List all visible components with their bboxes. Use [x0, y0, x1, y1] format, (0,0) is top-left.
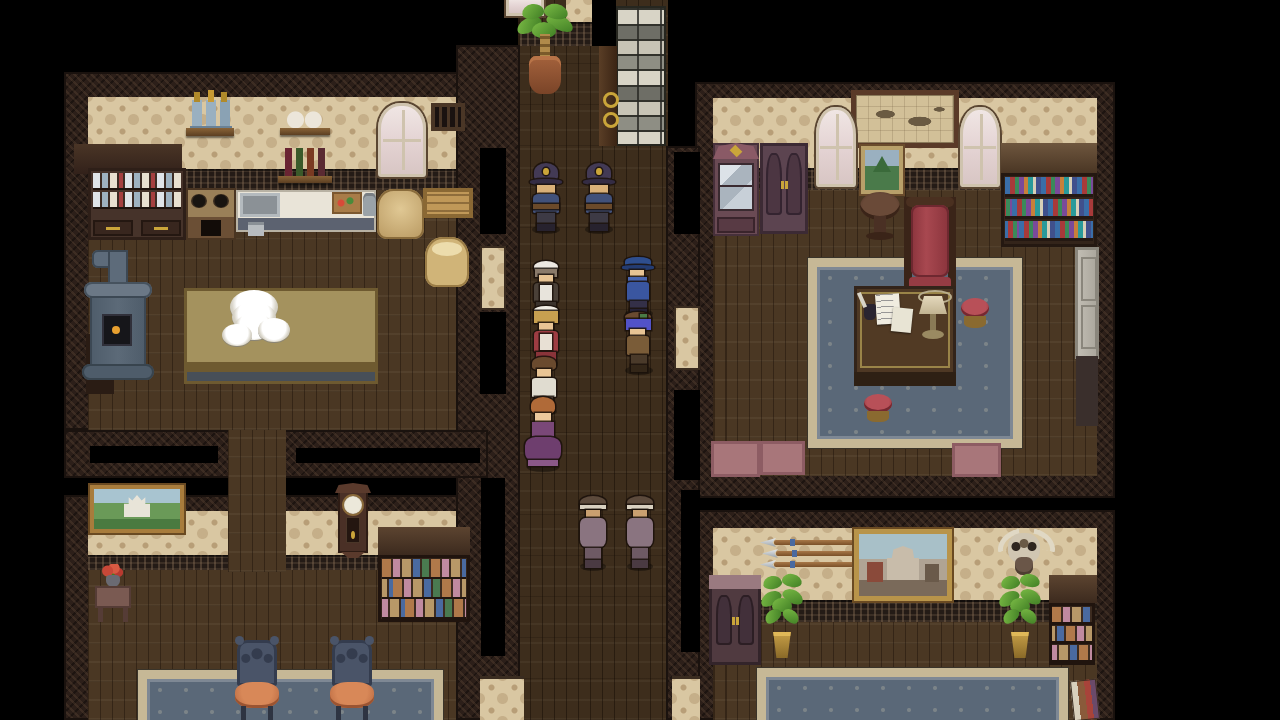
cloaked-figure-1[interactable]	[576, 496, 610, 568]
cloaked-figure-1-hat-band	[580, 505, 606, 509]
detective-coat	[627, 282, 649, 301]
butler-man-shirt	[532, 378, 556, 397]
blue-haired-boy-legs	[631, 355, 647, 366]
characters-layer	[0, 0, 1280, 720]
police-officer-2[interactable]	[581, 163, 617, 231]
blue-haired-boy-jacket	[627, 336, 649, 355]
cloaked-figure-1-face	[586, 510, 601, 518]
lady-purple-gown-face	[535, 413, 552, 422]
police-officer-1-legs	[537, 213, 555, 225]
blue-haired-boy-boots	[631, 365, 647, 372]
butler-man-face	[537, 369, 552, 377]
police-officer-2-badge	[596, 168, 602, 175]
lady-purple-gown-bodice	[532, 422, 554, 438]
police-officer-1-badge	[543, 168, 549, 175]
police-officer-2-torso	[586, 194, 612, 213]
blonde-maid-face	[539, 323, 553, 331]
cloaked-figure-2-hat-band	[627, 505, 653, 509]
police-officer-1-face	[537, 185, 554, 193]
blonde-maid-apron	[540, 334, 552, 350]
cloaked-figure-2-legs	[632, 548, 648, 561]
cloaked-figure-2-boots	[632, 560, 648, 568]
detective-hat-brim	[622, 265, 654, 270]
police-officer-1[interactable]	[528, 163, 564, 231]
cloaked-figure-1-legs	[585, 548, 601, 561]
lady-purple-gown-hair	[531, 397, 555, 414]
cloaked-figure-1-boots	[585, 560, 601, 568]
cloaked-figure-1-cloak	[580, 518, 606, 548]
detective[interactable]	[621, 257, 657, 315]
cloaked-figure-2-face	[633, 510, 648, 518]
blue-haired-boy[interactable]	[621, 312, 657, 372]
police-officer-2-legs	[590, 213, 608, 225]
lady-purple-gown[interactable]	[522, 397, 564, 469]
blue-haired-boy-face	[630, 329, 644, 336]
head-maid-apron	[540, 285, 553, 301]
lady-purple-gown-skirt-trim	[528, 460, 558, 466]
blonde-maid-hair	[534, 311, 557, 323]
police-officer-1-boots	[537, 224, 555, 231]
police-officer-2-boots	[590, 224, 608, 231]
game-viewport[interactable]	[0, 0, 1280, 720]
head-maid-face	[539, 275, 553, 282]
police-officer-2-face	[590, 185, 607, 193]
police-officer-1-torso	[533, 194, 559, 213]
cloaked-figure-2-cloak	[627, 518, 653, 548]
cloaked-figure-2[interactable]	[623, 496, 657, 568]
police-officer-1-belt	[533, 204, 559, 209]
police-officer-2-belt	[586, 204, 612, 209]
